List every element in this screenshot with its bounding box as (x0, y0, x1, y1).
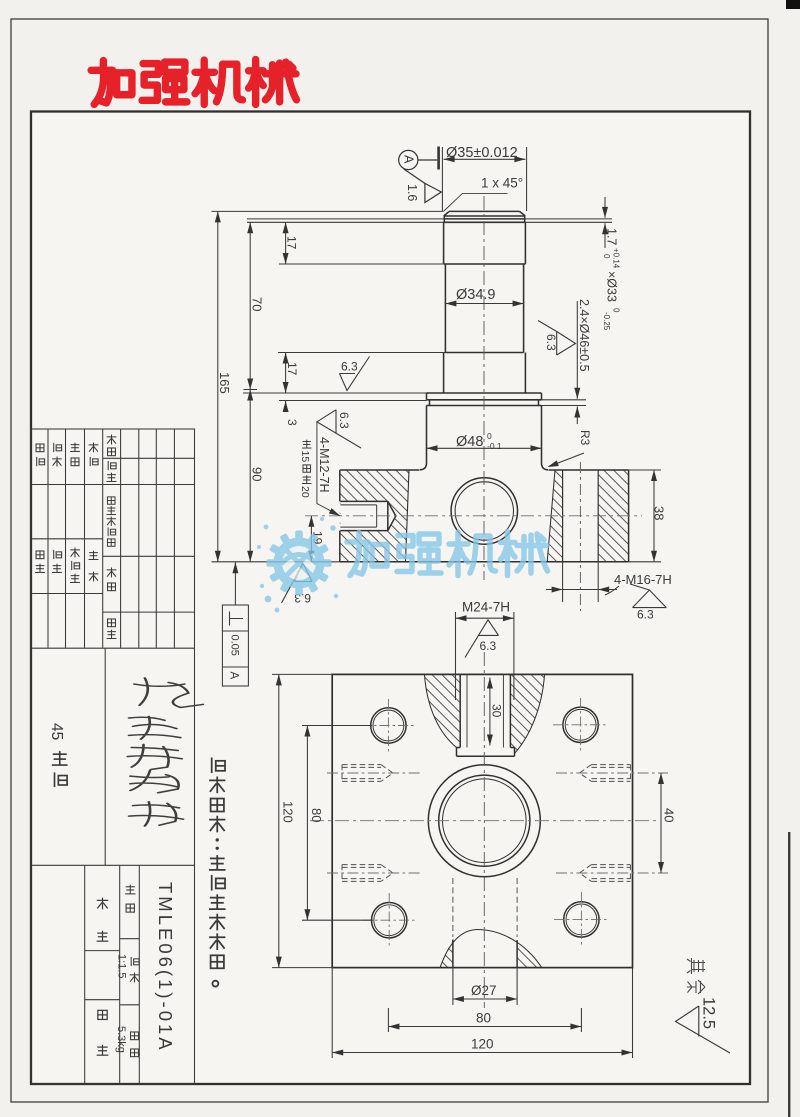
svg-text:120: 120 (281, 801, 296, 823)
svg-text:1.6: 1.6 (405, 184, 419, 201)
svg-text:-0.25: -0.25 (602, 312, 611, 331)
svg-text:45: 45 (48, 723, 65, 740)
svg-text:6.3: 6.3 (341, 360, 358, 374)
svg-text:120: 120 (471, 1037, 494, 1052)
svg-text:R3: R3 (578, 430, 592, 446)
svg-text:0.05: 0.05 (229, 635, 241, 656)
svg-text:17: 17 (285, 362, 299, 376)
svg-text:1:1.5: 1:1.5 (116, 954, 128, 978)
svg-text:70: 70 (250, 297, 265, 311)
svg-text:6.3: 6.3 (544, 334, 558, 351)
svg-text:2.4×Ø46±0.5: 2.4×Ø46±0.5 (577, 299, 591, 372)
svg-text:A: A (228, 672, 240, 680)
svg-text:30: 30 (490, 704, 504, 718)
svg-text:0: 0 (602, 254, 611, 259)
svg-text:0: 0 (612, 308, 621, 313)
svg-text:Ø34.9: Ø34.9 (456, 287, 496, 303)
svg-text:12.5: 12.5 (700, 997, 718, 1029)
svg-text:4-M16-7H: 4-M16-7H (614, 572, 672, 587)
svg-text:1.7: 1.7 (605, 228, 619, 245)
svg-text:6.3: 6.3 (337, 412, 351, 429)
svg-text:6.3: 6.3 (637, 608, 654, 622)
svg-text:Ø48: Ø48 (456, 434, 483, 450)
svg-text:38: 38 (652, 506, 667, 520)
svg-text:M24-7H: M24-7H (462, 600, 510, 615)
svg-text:15: 15 (299, 451, 311, 463)
svg-text:40: 40 (662, 808, 677, 822)
svg-text:TMLE06(1)-01A: TMLE06(1)-01A (155, 882, 176, 1053)
svg-text:A: A (402, 155, 416, 164)
svg-text:0: 0 (487, 431, 492, 441)
svg-text:165: 165 (217, 372, 232, 394)
svg-text:Ø27: Ø27 (471, 983, 497, 998)
svg-text:1 x 45°: 1 x 45° (481, 176, 523, 191)
svg-text:20: 20 (299, 486, 311, 498)
svg-text:17: 17 (285, 236, 299, 250)
svg-text:6.3: 6.3 (480, 639, 497, 653)
svg-text:5.3kg: 5.3kg (115, 1026, 127, 1053)
svg-text:Ø35±0.012: Ø35±0.012 (446, 145, 518, 161)
svg-text:90: 90 (250, 467, 265, 481)
svg-text:80: 80 (476, 1011, 491, 1026)
svg-text:3: 3 (285, 419, 299, 426)
svg-text:80: 80 (309, 808, 324, 822)
svg-text:-0.1: -0.1 (487, 441, 502, 451)
svg-text:4-M12-7H: 4-M12-7H (317, 437, 331, 493)
svg-text:+0.14: +0.14 (612, 248, 621, 269)
svg-text:×Ø33: ×Ø33 (605, 271, 619, 302)
